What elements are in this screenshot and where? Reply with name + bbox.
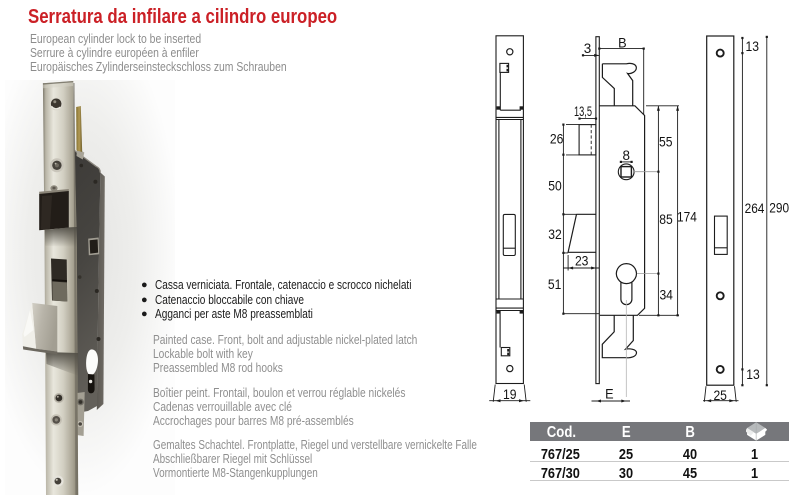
svg-text:85: 85 [659,211,673,227]
svg-text:50: 50 [548,178,562,194]
svg-text:174: 174 [677,209,697,225]
svg-text:3: 3 [584,40,592,56]
svg-text:32: 32 [548,226,562,242]
svg-text:264: 264 [745,200,765,216]
svg-text:23: 23 [575,253,589,269]
svg-text:13: 13 [746,38,760,54]
svg-text:13,5: 13,5 [574,103,592,119]
svg-text:26: 26 [550,131,564,147]
svg-text:E: E [605,386,614,402]
svg-text:34: 34 [659,287,673,303]
svg-text:8: 8 [622,147,630,163]
svg-text:55: 55 [659,134,673,150]
svg-text:25: 25 [713,387,727,403]
svg-text:19: 19 [503,386,517,402]
svg-text:13: 13 [746,366,760,382]
svg-text:290: 290 [769,200,789,216]
svg-text:B: B [618,35,627,51]
svg-text:51: 51 [548,276,562,292]
